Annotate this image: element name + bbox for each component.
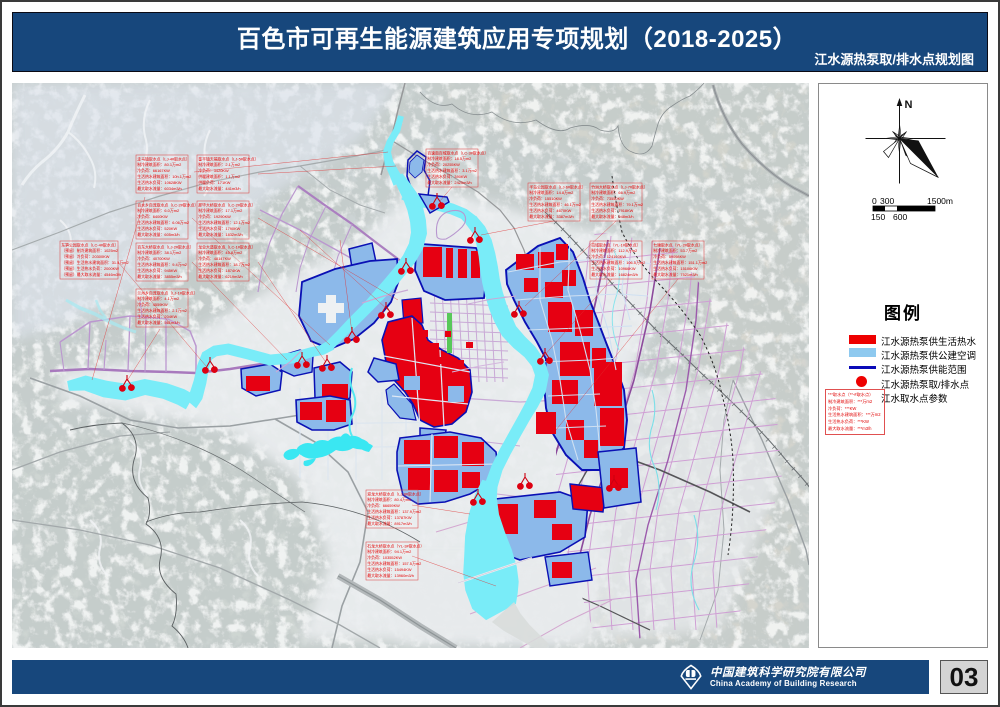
svg-text:制冷建筑面积：80.1万m2: 制冷建筑面积：80.1万m2 [137, 162, 181, 167]
svg-text:冷负荷：40700KW: 冷负荷：40700KW [137, 256, 170, 261]
svg-text:制冷建筑面积：14.8万m2: 制冷建筑面积：14.8万m2 [529, 190, 573, 195]
svg-text:冷负荷：19290KW: 冷负荷：19290KW [198, 214, 231, 219]
svg-text:冷负荷：124160KW: 冷负荷：124160KW [591, 254, 626, 259]
svg-text:生活热水建筑面积：79.1万m2: 生活热水建筑面积：79.1万m2 [591, 202, 643, 207]
svg-text:最大取水流量：605m3/h: 最大取水流量：605m3/h [137, 232, 179, 237]
svg-text:供暖建筑面积：1.1万m2: 供暖建筑面积：1.1万m2 [198, 174, 240, 179]
svg-text:最大取水流量：6034m3/h: 最大取水流量：6034m3/h [137, 186, 182, 191]
svg-text:生活热水建筑面积：46.1万m2: 生活热水建筑面积：46.1万m2 [529, 202, 581, 207]
svg-text:那毕大桥取水点（LC-2#取水点）: 那毕大桥取水点（LC-2#取水点） [198, 202, 255, 207]
svg-text:制冷建筑面积：45.8万m2: 制冷建筑面积：45.8万m2 [198, 250, 242, 255]
svg-text:600: 600 [893, 212, 907, 222]
svg-text:冷负荷：15510KW: 冷负荷：15510KW [529, 196, 562, 201]
svg-text:石龙大桥取水点（YL-3#取水点）: 石龙大桥取水点（YL-3#取水点） [367, 543, 424, 548]
svg-text:生活热水负荷：520KW: 生活热水负荷：520KW [137, 226, 177, 231]
svg-text:冷负荷：3420KW: 冷负荷：3420KW [198, 168, 229, 173]
svg-text:龙业大道取水点（LC-1#取水点）: 龙业大道取水点（LC-1#取水点） [198, 244, 255, 249]
svg-text:最大取水流量：948m3/h: 最大取水流量：948m3/h [591, 214, 633, 219]
svg-text:生活热水负荷：10628KW: 生活热水负荷：10628KW [137, 180, 182, 185]
svg-text:拉域取水点（YL-1#取水点）: 拉域取水点（YL-1#取水点） [591, 242, 640, 247]
svg-text:生活热水建筑面积：12.1万m2: 生活热水建筑面积：12.1万m2 [198, 220, 250, 225]
svg-text:制冷建筑面积：17.1万m2: 制冷建筑面积：17.1万m2 [198, 208, 242, 213]
svg-text:冷负荷：66167KW: 冷负荷：66167KW [137, 168, 170, 173]
svg-text:生活热水建筑面积：9.4万m2: 生活热水建筑面积：9.4万m2 [137, 262, 187, 267]
svg-text:（预留）最大取水流量：4546m3/h: （预留）最大取水流量：4546m3/h [61, 272, 121, 277]
svg-text:最大取水流量：1832m3/h: 最大取水流量：1832m3/h [198, 232, 243, 237]
svg-text:最大取水流量：7521m3/h: 最大取水流量：7521m3/h [653, 272, 698, 277]
svg-text:最大取水流量：3387m3/h: 最大取水流量：3387m3/h [529, 214, 574, 219]
svg-text:最大取水流量：16824m3/h: 最大取水流量：16824m3/h [591, 272, 638, 277]
svg-text:生活热水建筑面积：10h.1万m2: 生活热水建筑面积：10h.1万m2 [137, 174, 191, 179]
svg-text:生活热水负荷：204KW: 生活热水负荷：204KW [137, 314, 177, 319]
svg-text:制冷建筑面积：18.5万m2: 制冷建筑面积：18.5万m2 [427, 156, 471, 161]
svg-text:生活热水建筑面积：137.9万m2: 生活热水建筑面积：137.9万m2 [367, 509, 421, 514]
svg-text:走马镇取水点（LJ-4#取水点）: 走马镇取水点（LJ-4#取水点） [137, 156, 190, 161]
svg-text:N: N [905, 99, 913, 111]
svg-text:生活热水建筑面积：157.5万m2: 生活热水建筑面积：157.5万m2 [367, 561, 421, 566]
svg-text:最大取水流量：2425m3/h: 最大取水流量：2425m3/h [427, 180, 472, 185]
svg-text:最大取水流量：6219m3/h: 最大取水流量：6219m3/h [198, 274, 243, 279]
svg-text:制冷建筑面积：2.1万m2: 制冷建筑面积：2.1万m2 [198, 162, 240, 167]
svg-text:百东大桥取水点（LJ-2#取水点）: 百东大桥取水点（LJ-2#取水点） [137, 244, 193, 249]
svg-text:生活热水建筑面积：106.5万m2: 生活热水建筑面积：106.5万m2 [591, 260, 645, 265]
svg-text:冷负荷：48147KW: 冷负荷：48147KW [198, 256, 231, 261]
svg-text:制冷建筑面积：53.7万m2: 制冷建筑面积：53.7万m2 [653, 248, 697, 253]
svg-text:竹洲大桥取水点（LJ-7#取水点）: 竹洲大桥取水点（LJ-7#取水点） [591, 184, 647, 189]
svg-text:最大取水流量：13960m3/h: 最大取水流量：13960m3/h [367, 573, 414, 578]
svg-text:制冷建筑面积：112.9万m2: 制冷建筑面积：112.9万m2 [591, 248, 637, 253]
svg-text:（预留）冷负荷：20300KW: （预留）冷负荷：20300KW [61, 254, 110, 259]
svg-text:0: 0 [872, 196, 877, 206]
svg-text:最大取水流量：561m3/h: 最大取水流量：561m3/h [137, 320, 179, 325]
svg-text:生活热水负荷：4670KW: 生活热水负荷：4670KW [529, 208, 571, 213]
svg-text:生活热水负荷：10966KW: 生活热水负荷：10966KW [591, 266, 636, 271]
svg-text:生活热水建筑面积：6.06万m2: 生活热水建筑面积：6.06万m2 [137, 220, 189, 225]
svg-text:冷负荷：4559KW: 冷负荷：4559KW [137, 302, 168, 307]
svg-text:百速南百城取水点（LC-3#取水点）: 百速南百城取水点（LC-3#取水点） [427, 150, 488, 155]
svg-text:生活热水负荷：1790KW: 生活热水负荷：1790KW [198, 226, 240, 231]
svg-text:最大取水流量：3855m3/h: 最大取水流量：3855m3/h [137, 274, 182, 279]
svg-text:生活热水负荷：15106KW: 生活热水负荷：15106KW [653, 266, 698, 271]
svg-text:（预留）制冷建筑面积：1025m2: （预留）制冷建筑面积：1025m2 [61, 248, 118, 253]
svg-text:生活热水建筑面积：2.1万m2: 生活热水建筑面积：2.1万m2 [137, 308, 187, 313]
svg-text:制冷建筑面积：6.0万m2: 制冷建筑面积：6.0万m2 [137, 208, 179, 213]
svg-text:銮平镇天福取水点（LJ-5#取水点）: 銮平镇天福取水点（LJ-5#取水点） [198, 156, 258, 161]
svg-text:150: 150 [871, 212, 885, 222]
svg-text:（预留）生活热水负荷：2000KW: （预留）生活热水负荷：2000KW [61, 266, 119, 271]
svg-text:制冷建筑面积：94.1万m2: 制冷建筑面积：94.1万m2 [367, 549, 411, 554]
svg-text:七塘取水点（YL-2#取水点）: 七塘取水点（YL-2#取水点） [653, 242, 702, 247]
svg-text:百水乡自流取水点（LC-2#取水点）: 百水乡自流取水点（LC-2#取水点） [137, 202, 198, 207]
svg-text:生活热水负荷：7918KW: 生活热水负荷：7918KW [591, 208, 633, 213]
svg-text:300: 300 [880, 196, 894, 206]
svg-text:冷负荷：6400KW: 冷负荷：6400KW [137, 214, 168, 219]
svg-text:最大取水流量：8917m3/h: 最大取水流量：8917m3/h [367, 521, 412, 526]
svg-text:制冷建筑面积：66.9万m2: 制冷建筑面积：66.9万m2 [591, 190, 635, 195]
svg-text:冷负荷：103552KW: 冷负荷：103552KW [367, 555, 402, 560]
svg-text:（预留）生活热水建筑面积：31.5万m2: （预留）生活热水建筑面积：31.5万m2 [61, 260, 128, 265]
svg-text:生活热水建筑面积：3.1万m2: 生活热水建筑面积：3.1万m2 [427, 168, 477, 173]
svg-text:制冷建筑面积：80.4万m2: 制冷建筑面积：80.4万m2 [367, 497, 411, 502]
svg-text:冷负荷：73550KW: 冷负荷：73550KW [591, 196, 624, 201]
svg-text:最大取水流量：441m3/h: 最大取水流量：441m3/h [198, 186, 240, 191]
svg-text:生活热水负荷：1874KW: 生活热水负荷：1874KW [198, 268, 240, 273]
svg-text:生活热水负荷：15494KW: 生活热水负荷：15494KW [367, 567, 412, 572]
svg-text:生活热水建筑面积：151.1万m2: 生活热水建筑面积：151.1万m2 [653, 260, 707, 265]
svg-text:迎龙大桥取水点（LJ-8#取水点）: 迎龙大桥取水点（LJ-8#取水点） [367, 491, 423, 496]
svg-text:1500m: 1500m [927, 196, 953, 206]
svg-text:冷负荷：59098KW: 冷负荷：59098KW [653, 254, 686, 259]
svg-text:冷负荷：66659KW: 冷负荷：66659KW [367, 503, 400, 508]
svg-text:冷负荷：20255KW: 冷负荷：20255KW [427, 162, 460, 167]
svg-text:供暖负荷：171KW: 供暖负荷：171KW [198, 180, 231, 185]
svg-text:制冷建筑面积：4.1万m2: 制冷建筑面积：4.1万m2 [137, 296, 179, 301]
svg-text:生活热水负荷：13787KW: 生活热水负荷：13787KW [367, 515, 412, 520]
svg-text:生活热水负荷：945KW: 生活热水负荷：945KW [137, 268, 177, 273]
svg-text:东笋公园取水点（LC-4#取水点）: 东笋公园取水点（LC-4#取水点） [61, 242, 118, 247]
svg-text:生活热水建筑面积：18.7万m2: 生活热水建筑面积：18.7万m2 [198, 262, 250, 267]
svg-text:生活热水负荷：390KW: 生活热水负荷：390KW [427, 174, 467, 179]
svg-text:半岛公园取水点（LJ-6#取水点）: 半岛公园取水点（LJ-6#取水点） [529, 184, 585, 189]
svg-text:制冷建筑面积：38.1万m2: 制冷建筑面积：38.1万m2 [137, 250, 181, 255]
svg-text:兰州乡自流取水点（LJ-1#取水点）: 兰州乡自流取水点（LJ-1#取水点） [137, 290, 197, 295]
